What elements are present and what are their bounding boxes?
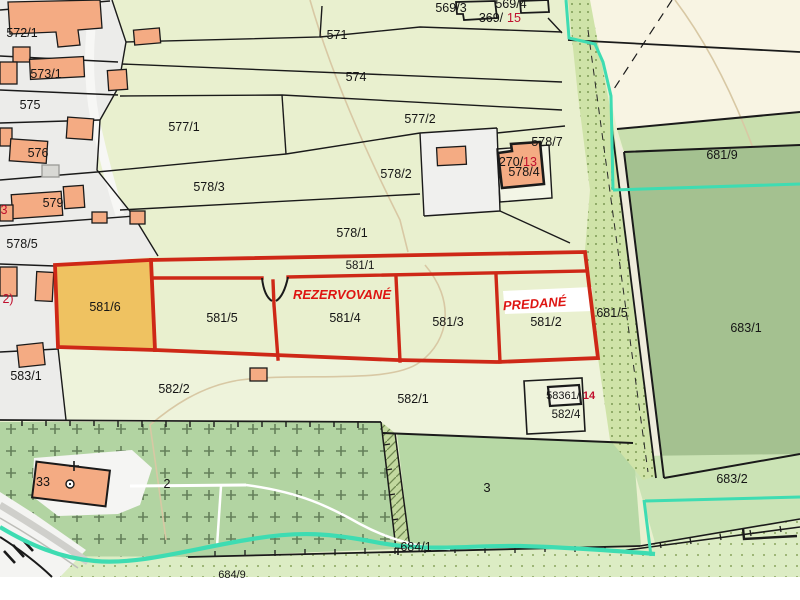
building (66, 117, 93, 140)
label-569-3: 569/3 (435, 1, 466, 15)
label-578-2: 578/2 (380, 167, 411, 181)
building (35, 272, 53, 302)
label-684-9: 684/9 (218, 569, 246, 581)
label-REZERVOVAN-: REZERVOVANÉ (293, 287, 391, 302)
building (92, 212, 107, 223)
label-2-: 2) (2, 292, 13, 306)
shed (42, 165, 59, 177)
label-15: 15 (507, 11, 521, 25)
label-578-4: 578/4 (508, 165, 539, 179)
label-573-1: 573/1 (30, 67, 61, 81)
label-33: 33 (36, 475, 50, 489)
label-581-1: 581/1 (346, 260, 375, 272)
building (13, 47, 30, 62)
building (107, 69, 127, 90)
label-681-9: 681/9 (706, 148, 737, 162)
label-569-4: 569/4 (495, 0, 526, 11)
parcel-578-2-pocket (420, 128, 500, 216)
label-58361-: 58361/ (546, 390, 581, 402)
label-572-1: 572/1 (6, 26, 37, 40)
label-3: 3 (1, 203, 8, 217)
label-577-2: 577/2 (404, 112, 435, 126)
cadastral-map-viewport[interactable]: 572/1573/1575576579578/5583/1571574577/1… (0, 0, 800, 600)
label-684-1: 684/1 (400, 540, 431, 554)
label-575: 575 (20, 98, 41, 112)
label-2: 2 (164, 477, 171, 491)
building (250, 368, 267, 381)
label-578-5: 578/5 (6, 237, 37, 251)
label-576: 576 (28, 146, 49, 160)
label-578-7: 578/7 (531, 135, 562, 149)
label-681-5: 681/5 (596, 306, 627, 320)
building (17, 343, 45, 368)
label-579: 579 (43, 196, 64, 210)
label-571: 571 (327, 28, 348, 42)
bottom-margin (0, 578, 800, 600)
building (133, 28, 160, 45)
well-symbol-dot (69, 483, 71, 485)
label-581-4: 581/4 (329, 311, 360, 325)
label-581-5: 581/5 (206, 311, 237, 325)
label-583-1: 583/1 (10, 369, 41, 383)
cadastral-map[interactable]: 572/1573/1575576579578/5583/1571574577/1… (0, 0, 800, 600)
label-683-2: 683/2 (716, 472, 747, 486)
building (63, 185, 84, 208)
label-578-1: 578/1 (336, 226, 367, 240)
label-581-6: 581/6 (89, 300, 120, 314)
label-582-4: 582/4 (552, 409, 581, 421)
label-581-3: 581/3 (432, 315, 463, 329)
building (0, 62, 17, 84)
label-14: 14 (583, 390, 596, 402)
parcel-3-area (397, 433, 641, 548)
label-3: 3 (483, 480, 490, 495)
label-578-3: 578/3 (193, 180, 224, 194)
cream-area (585, 0, 800, 129)
label-574: 574 (346, 70, 367, 84)
label-577-1: 577/1 (168, 120, 199, 134)
label-581-2: 581/2 (530, 315, 561, 329)
label-582-2: 582/2 (158, 382, 189, 396)
label-582-1: 582/1 (397, 392, 428, 406)
label-683-1: 683/1 (730, 321, 761, 335)
label-369-: 369/ (479, 11, 504, 25)
path-line (130, 485, 246, 486)
building (437, 146, 467, 165)
building (130, 211, 145, 224)
